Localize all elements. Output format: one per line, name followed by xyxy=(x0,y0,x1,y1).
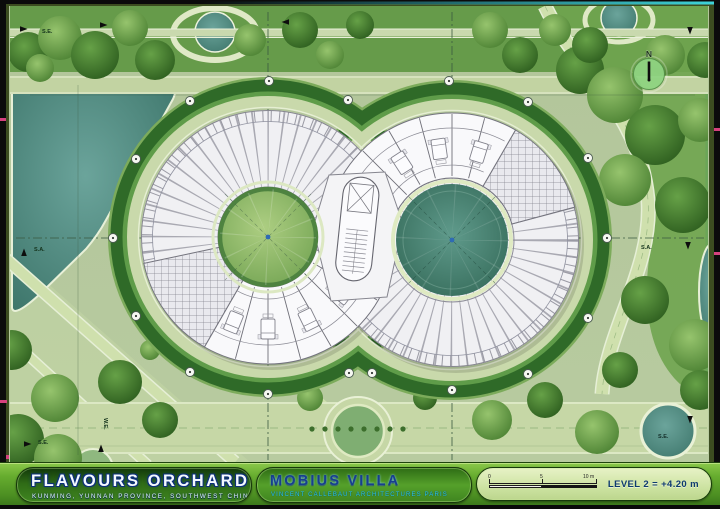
road-label-nw: S.E. xyxy=(42,29,53,35)
road-label-se: S.E. xyxy=(658,434,669,440)
drawing-title-box: MOBIUS VILLA VINCENT CALLEBAUT ARCHITECT… xyxy=(256,467,472,503)
project-title: FLAVOURS ORCHARD xyxy=(31,473,251,490)
roundabout-southeast-pond xyxy=(641,404,695,458)
level-info-box: 0 5 10 m LEVEL 2 = +4.20 m xyxy=(476,467,712,501)
bottom-border xyxy=(0,505,720,509)
drawing-title: MOBIUS VILLA xyxy=(270,474,471,489)
scale-bar: 0 5 10 m xyxy=(489,476,597,492)
central-core xyxy=(313,172,403,301)
road-label-sw-vertical: W.E. xyxy=(102,418,108,430)
left-courtyard-garden xyxy=(213,182,323,292)
road-label-east: S.A. xyxy=(641,245,652,251)
title-bar: FLAVOURS ORCHARD KUNMING, YUNNAN PROVINC… xyxy=(0,462,720,506)
road-label-sw: S.E. xyxy=(38,440,49,446)
right-courtyard-pond xyxy=(393,181,511,299)
frame-glow-line xyxy=(200,2,714,5)
scale-bar-segment-light xyxy=(489,485,542,488)
scale-bar-segment-dark xyxy=(542,485,597,488)
project-title-box: FLAVOURS ORCHARD KUNMING, YUNNAN PROVINC… xyxy=(16,467,252,503)
scale-bar-tick xyxy=(489,479,490,484)
project-subtitle: KUNMING, YUNNAN PROVINCE, SOUTHWEST CHIN… xyxy=(32,493,251,500)
poster-sheet: S.E. S.A. S.A. W.E. S.E. S.E. N FLAVOURS… xyxy=(0,0,720,509)
scale-bar-line xyxy=(489,483,597,484)
road-label-west: S.A. xyxy=(34,247,45,253)
level-label: LEVEL 2 = +4.20 m xyxy=(608,479,699,490)
scale-bar-tick xyxy=(542,479,543,484)
drawing-subtitle: VINCENT CALLEBAUT ARCHITECTURES PARIS xyxy=(271,492,471,498)
north-label: N xyxy=(646,49,652,59)
site-plan-canvas: S.E. S.A. S.A. W.E. S.E. S.E. N xyxy=(0,0,720,462)
scale-tick-10m: 10 m xyxy=(583,474,594,480)
scale-bar-tick xyxy=(596,479,597,484)
